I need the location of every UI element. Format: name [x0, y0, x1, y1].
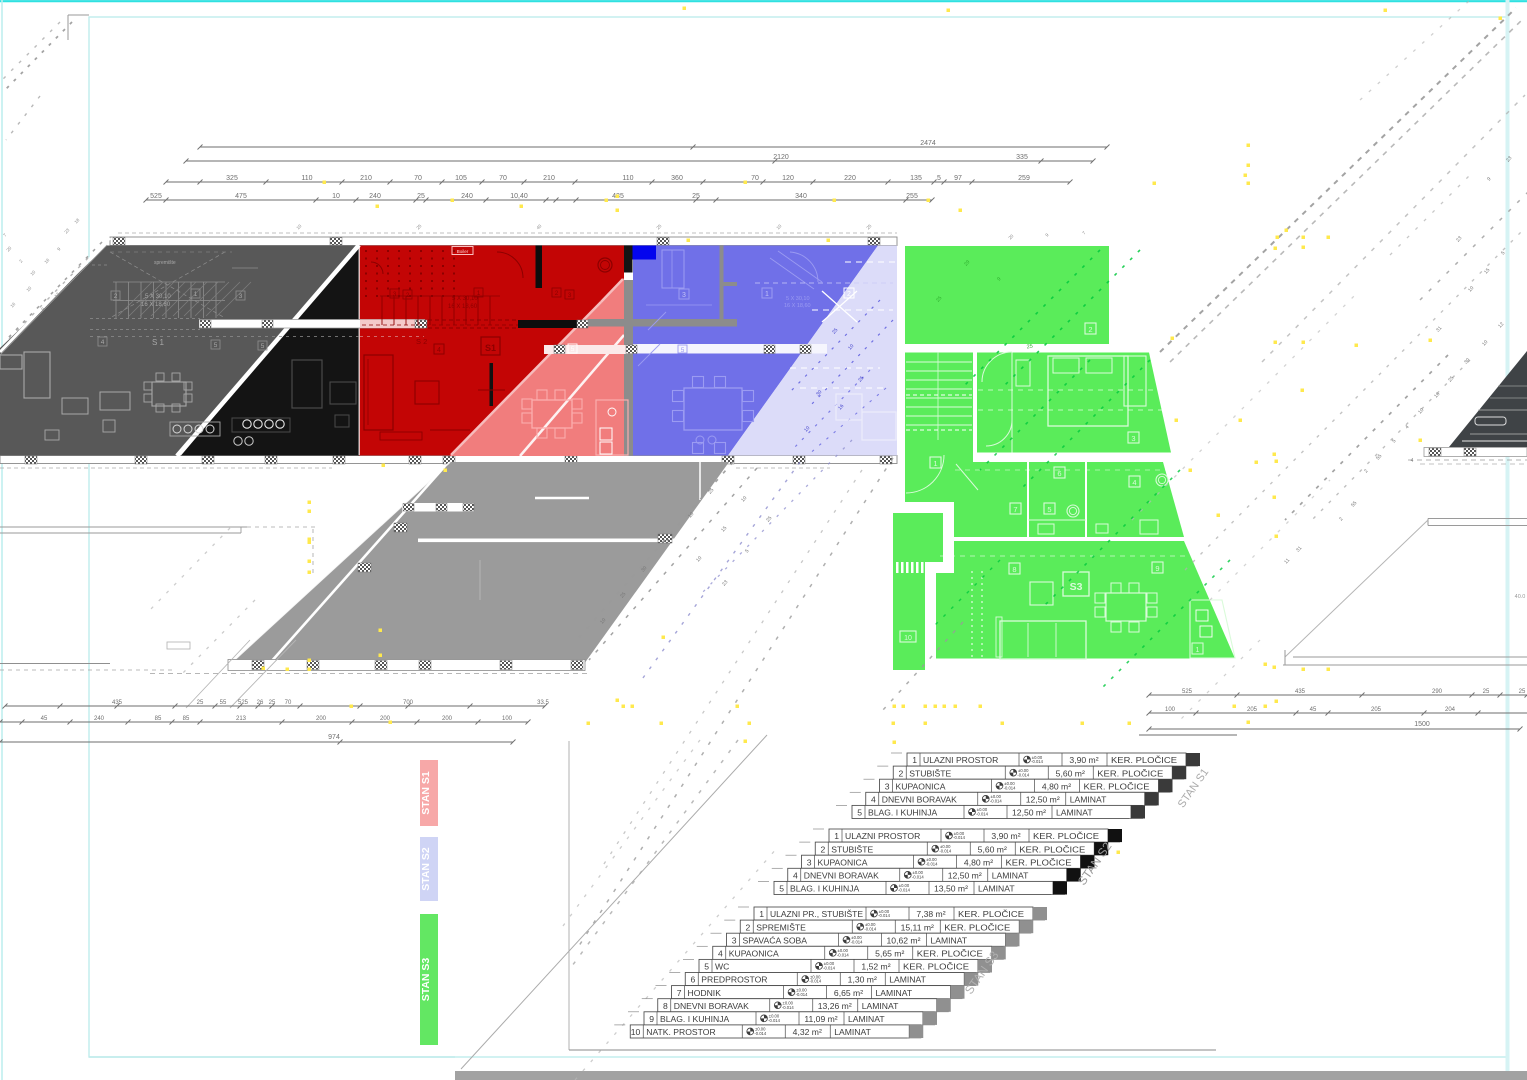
- svg-text:Boiler: Boiler: [457, 249, 469, 254]
- svg-text:10: 10: [631, 1027, 641, 1037]
- svg-text:5 X 30,10: 5 X 30,10: [786, 296, 810, 302]
- svg-text:-0.014: -0.014: [939, 848, 952, 853]
- svg-text:STUBIŠTE: STUBIŠTE: [831, 844, 873, 854]
- svg-text:7: 7: [1013, 505, 1017, 514]
- svg-text:ULAZNI PROSTOR: ULAZNI PROSTOR: [923, 755, 998, 765]
- svg-text:1: 1: [194, 291, 198, 298]
- svg-text:120: 120: [782, 175, 794, 182]
- svg-text:85: 85: [155, 716, 162, 722]
- svg-text:9: 9: [649, 1014, 654, 1024]
- svg-text:2: 2: [555, 290, 559, 297]
- svg-text:6: 6: [690, 975, 695, 985]
- svg-text:435: 435: [1295, 689, 1306, 695]
- svg-text:5: 5: [857, 808, 862, 818]
- svg-text:4: 4: [437, 347, 441, 354]
- svg-text:70: 70: [285, 700, 292, 706]
- svg-text:105: 105: [455, 175, 467, 182]
- svg-text:25: 25: [1483, 689, 1490, 695]
- svg-text:3: 3: [807, 857, 812, 867]
- svg-text:PREDPROSTOR: PREDPROSTOR: [701, 975, 767, 985]
- svg-text:-0.014: -0.014: [1004, 785, 1017, 790]
- svg-text:S 1: S 1: [152, 338, 165, 347]
- svg-text:16 X 18,60: 16 X 18,60: [141, 302, 171, 308]
- svg-text:S3: S3: [1070, 581, 1083, 593]
- svg-text:KER. PLOČICE: KER. PLOČICE: [1019, 844, 1085, 854]
- svg-text:-0.014: -0.014: [926, 861, 939, 866]
- svg-text:16 X 18,60: 16 X 18,60: [784, 303, 811, 309]
- svg-text:BLAG. I KUHINJA: BLAG. I KUHINJA: [868, 808, 938, 818]
- svg-text:10,62 m²: 10,62 m²: [887, 935, 921, 945]
- svg-text:LAMINAT: LAMINAT: [848, 1014, 885, 1024]
- svg-text:BLAG. I KUHINJA: BLAG. I KUHINJA: [660, 1014, 730, 1024]
- svg-text:HODNIK: HODNIK: [688, 988, 722, 998]
- svg-text:KER. PLOČICE: KER. PLOČICE: [944, 922, 1010, 932]
- svg-text:1: 1: [912, 755, 917, 765]
- svg-text:KER. PLOČICE: KER. PLOČICE: [1006, 857, 1072, 867]
- svg-text:5,60 m²: 5,60 m²: [978, 844, 1007, 854]
- svg-text:1: 1: [1196, 647, 1200, 654]
- svg-text:1: 1: [477, 290, 481, 297]
- svg-text:DNEVNI BORAVAK: DNEVNI BORAVAK: [882, 795, 957, 805]
- svg-text:2474: 2474: [920, 140, 936, 147]
- svg-text:525: 525: [1182, 689, 1193, 695]
- svg-text:360: 360: [671, 175, 683, 182]
- svg-text:8: 8: [663, 1001, 668, 1011]
- svg-text:KUPAONICA: KUPAONICA: [818, 857, 868, 867]
- svg-text:1: 1: [765, 291, 769, 298]
- svg-text:4: 4: [793, 871, 798, 881]
- svg-text:KER. PLOČICE: KER. PLOČICE: [958, 909, 1024, 919]
- svg-text:-0.014: -0.014: [990, 798, 1003, 803]
- svg-text:-0.014: -0.014: [953, 835, 966, 840]
- svg-text:25: 25: [692, 193, 700, 200]
- svg-text:435: 435: [112, 700, 123, 706]
- svg-text:WC: WC: [715, 962, 729, 972]
- svg-text:525: 525: [150, 193, 162, 200]
- svg-text:5,65 m²: 5,65 m²: [875, 949, 904, 959]
- svg-text:ULAZNI PROSTOR: ULAZNI PROSTOR: [845, 831, 920, 841]
- svg-text:1: 1: [834, 831, 839, 841]
- svg-text:70: 70: [751, 175, 759, 182]
- svg-text:5: 5: [1047, 505, 1051, 514]
- svg-text:2: 2: [898, 768, 903, 778]
- svg-text:325: 325: [226, 175, 238, 182]
- svg-text:13,50 m²: 13,50 m²: [934, 884, 968, 894]
- svg-text:LAMINAT: LAMINAT: [1056, 808, 1093, 818]
- svg-text:3,90 m²: 3,90 m²: [991, 831, 1020, 841]
- svg-text:5: 5: [571, 346, 575, 353]
- svg-text:4: 4: [1132, 478, 1136, 487]
- svg-text:15,11 m²: 15,11 m²: [901, 922, 934, 932]
- svg-text:LAMINAT: LAMINAT: [992, 871, 1029, 881]
- svg-text:4: 4: [871, 795, 876, 805]
- svg-text:5 X 30,10: 5 X 30,10: [145, 294, 171, 300]
- svg-text:-0.014: -0.014: [878, 913, 891, 918]
- svg-text:3: 3: [682, 292, 686, 299]
- svg-text:-0.014: -0.014: [754, 1031, 767, 1036]
- svg-text:3: 3: [1131, 434, 1135, 443]
- svg-text:974: 974: [328, 734, 340, 741]
- svg-text:KER. PLOČICE: KER. PLOČICE: [1097, 768, 1163, 778]
- svg-text:12,50 m²: 12,50 m²: [948, 871, 982, 881]
- svg-text:5: 5: [779, 884, 784, 894]
- svg-text:220: 220: [844, 175, 856, 182]
- svg-text:5: 5: [704, 962, 709, 972]
- svg-text:110: 110: [622, 175, 633, 182]
- svg-text:5: 5: [214, 342, 218, 349]
- svg-text:3: 3: [732, 935, 737, 945]
- svg-text:-0.014: -0.014: [796, 992, 809, 997]
- svg-text:3: 3: [393, 291, 397, 298]
- svg-text:5: 5: [261, 343, 265, 350]
- svg-text:100: 100: [1165, 707, 1176, 713]
- svg-text:240: 240: [369, 193, 381, 200]
- svg-text:85: 85: [183, 716, 190, 722]
- svg-text:3: 3: [239, 293, 243, 300]
- svg-text:KER. PLOČICE: KER. PLOČICE: [1084, 781, 1150, 791]
- svg-text:210: 210: [543, 175, 555, 182]
- svg-text:25: 25: [269, 700, 276, 706]
- svg-text:5,60 m²: 5,60 m²: [1056, 768, 1085, 778]
- svg-text:255: 255: [906, 193, 918, 200]
- svg-text:-0.014: -0.014: [768, 1018, 781, 1023]
- svg-text:LAMINAT: LAMINAT: [931, 935, 968, 945]
- svg-text:4,80 m²: 4,80 m²: [964, 857, 993, 867]
- svg-text:11,09 m²: 11,09 m²: [804, 1014, 837, 1024]
- svg-text:STAN S2: STAN S2: [420, 847, 432, 891]
- svg-text:1,30 m²: 1,30 m²: [848, 975, 877, 985]
- svg-text:spremište: spremište: [154, 260, 176, 266]
- svg-text:LAMINAT: LAMINAT: [889, 975, 926, 985]
- svg-text:1: 1: [933, 459, 937, 468]
- svg-text:1500: 1500: [1414, 721, 1430, 728]
- svg-text:12,50 m²: 12,50 m²: [1026, 795, 1060, 805]
- svg-text:135: 135: [910, 175, 922, 182]
- svg-text:205: 205: [1247, 707, 1258, 713]
- svg-text:10,40: 10,40: [510, 193, 528, 200]
- svg-text:DNEVNI BORAVAK: DNEVNI BORAVAK: [674, 1001, 749, 1011]
- svg-text:25: 25: [417, 193, 425, 200]
- svg-text:10: 10: [904, 635, 912, 642]
- svg-text:340: 340: [795, 193, 807, 200]
- svg-text:13,26 m²: 13,26 m²: [818, 1001, 852, 1011]
- svg-text:4: 4: [1411, 458, 1414, 464]
- svg-text:45: 45: [1310, 707, 1317, 713]
- svg-text:3: 3: [568, 292, 572, 299]
- svg-text:100: 100: [502, 716, 513, 722]
- svg-text:4: 4: [718, 949, 723, 959]
- svg-text:9: 9: [1155, 564, 1159, 573]
- svg-text:2: 2: [1088, 325, 1092, 334]
- svg-text:1,52 m²: 1,52 m²: [861, 962, 890, 972]
- svg-text:25: 25: [1519, 689, 1526, 695]
- svg-text:70: 70: [414, 175, 422, 182]
- svg-text:LAMINAT: LAMINAT: [862, 1001, 899, 1011]
- svg-text:290: 290: [1432, 689, 1443, 695]
- svg-text:7,38 m²: 7,38 m²: [916, 909, 945, 919]
- svg-text:205: 205: [1371, 707, 1382, 713]
- svg-text:ULAZNI PR., STUBIŠTE: ULAZNI PR., STUBIŠTE: [770, 909, 863, 919]
- svg-text:BLAG. I KUHINJA: BLAG. I KUHINJA: [790, 884, 860, 894]
- svg-text:KUPAONICA: KUPAONICA: [896, 781, 946, 791]
- svg-text:-0.014: -0.014: [823, 966, 836, 971]
- svg-text:STUBIŠTE: STUBIŠTE: [909, 768, 951, 778]
- svg-text:2: 2: [820, 844, 825, 854]
- svg-text:16 X 18,60: 16 X 18,60: [448, 304, 478, 310]
- svg-text:204: 204: [1445, 707, 1456, 713]
- svg-text:259: 259: [1018, 175, 1030, 182]
- svg-text:3: 3: [885, 781, 890, 791]
- svg-text:-0.014: -0.014: [912, 874, 925, 879]
- svg-text:26: 26: [257, 700, 264, 706]
- svg-text:210: 210: [360, 175, 372, 182]
- svg-text:2: 2: [745, 922, 750, 932]
- svg-text:525: 525: [238, 700, 249, 706]
- svg-text:KUPAONICA: KUPAONICA: [729, 949, 779, 959]
- svg-text:1: 1: [759, 909, 764, 919]
- svg-text:-0.014: -0.014: [782, 1005, 795, 1010]
- svg-text:45: 45: [41, 716, 48, 722]
- svg-text:6,65 m²: 6,65 m²: [834, 988, 863, 998]
- svg-text:213: 213: [236, 716, 247, 722]
- svg-text:10: 10: [332, 193, 340, 200]
- svg-text:40.0: 40.0: [1515, 594, 1526, 600]
- svg-text:STAN S3: STAN S3: [420, 958, 432, 1002]
- svg-text:33.5: 33.5: [537, 700, 549, 706]
- svg-text:-0.014: -0.014: [809, 979, 822, 984]
- svg-text:4,80 m²: 4,80 m²: [1042, 781, 1071, 791]
- svg-text:DNEVNI BORAVAK: DNEVNI BORAVAK: [804, 871, 879, 881]
- svg-text:-0.014: -0.014: [976, 812, 989, 817]
- svg-text:4: 4: [101, 339, 105, 346]
- svg-text:-0.014: -0.014: [837, 952, 850, 957]
- svg-text:70: 70: [499, 175, 507, 182]
- svg-text:12,50 m²: 12,50 m²: [1012, 808, 1046, 818]
- svg-text:SPAVAĆA SOBA: SPAVAĆA SOBA: [743, 935, 808, 945]
- svg-text:97: 97: [954, 175, 962, 182]
- svg-text:25: 25: [1026, 344, 1033, 351]
- svg-text:KER. PLOČICE: KER. PLOČICE: [1111, 755, 1177, 765]
- svg-text:335: 335: [1016, 154, 1028, 161]
- svg-text:-0.014: -0.014: [898, 888, 911, 893]
- svg-text:-0.014: -0.014: [1031, 759, 1044, 764]
- svg-text:SPREMIŠTE: SPREMIŠTE: [756, 922, 806, 932]
- svg-text:200: 200: [316, 716, 327, 722]
- svg-text:110: 110: [301, 175, 312, 182]
- svg-text:KER. PLOČICE: KER. PLOČICE: [903, 962, 969, 972]
- svg-text:LAMINAT: LAMINAT: [834, 1027, 871, 1037]
- svg-text:2: 2: [114, 293, 118, 300]
- svg-text:55: 55: [220, 700, 227, 706]
- svg-text:240: 240: [461, 193, 473, 200]
- svg-text:S1: S1: [485, 343, 496, 353]
- svg-text:LAMINAT: LAMINAT: [1070, 795, 1107, 805]
- svg-text:2: 2: [406, 292, 410, 299]
- svg-text:LAMINAT: LAMINAT: [978, 884, 1015, 894]
- svg-text:-0.014: -0.014: [851, 939, 864, 944]
- svg-text:5: 5: [681, 347, 685, 354]
- svg-text:240: 240: [94, 716, 105, 722]
- svg-text:NATK. PROSTOR: NATK. PROSTOR: [646, 1027, 715, 1037]
- svg-text:5: 5: [937, 175, 941, 182]
- svg-text:200: 200: [442, 716, 453, 722]
- svg-text:-0.014: -0.014: [864, 926, 877, 931]
- svg-text:S 2: S 2: [416, 337, 427, 346]
- svg-text:2120: 2120: [773, 154, 789, 161]
- svg-text:KER. PLOČICE: KER. PLOČICE: [917, 949, 983, 959]
- svg-text:475: 475: [235, 193, 247, 200]
- svg-text:STAN S1: STAN S1: [420, 771, 432, 815]
- svg-text:700: 700: [403, 700, 414, 706]
- svg-text:-0.014: -0.014: [1017, 772, 1030, 777]
- svg-text:3,90 m²: 3,90 m²: [1069, 755, 1098, 765]
- svg-text:LAMINAT: LAMINAT: [876, 988, 913, 998]
- svg-text:7: 7: [677, 988, 682, 998]
- svg-text:8: 8: [1012, 565, 1016, 574]
- svg-text:4,32 m²: 4,32 m²: [793, 1027, 822, 1037]
- svg-text:KER. PLOČICE: KER. PLOČICE: [1033, 831, 1099, 841]
- svg-text:25: 25: [197, 700, 204, 706]
